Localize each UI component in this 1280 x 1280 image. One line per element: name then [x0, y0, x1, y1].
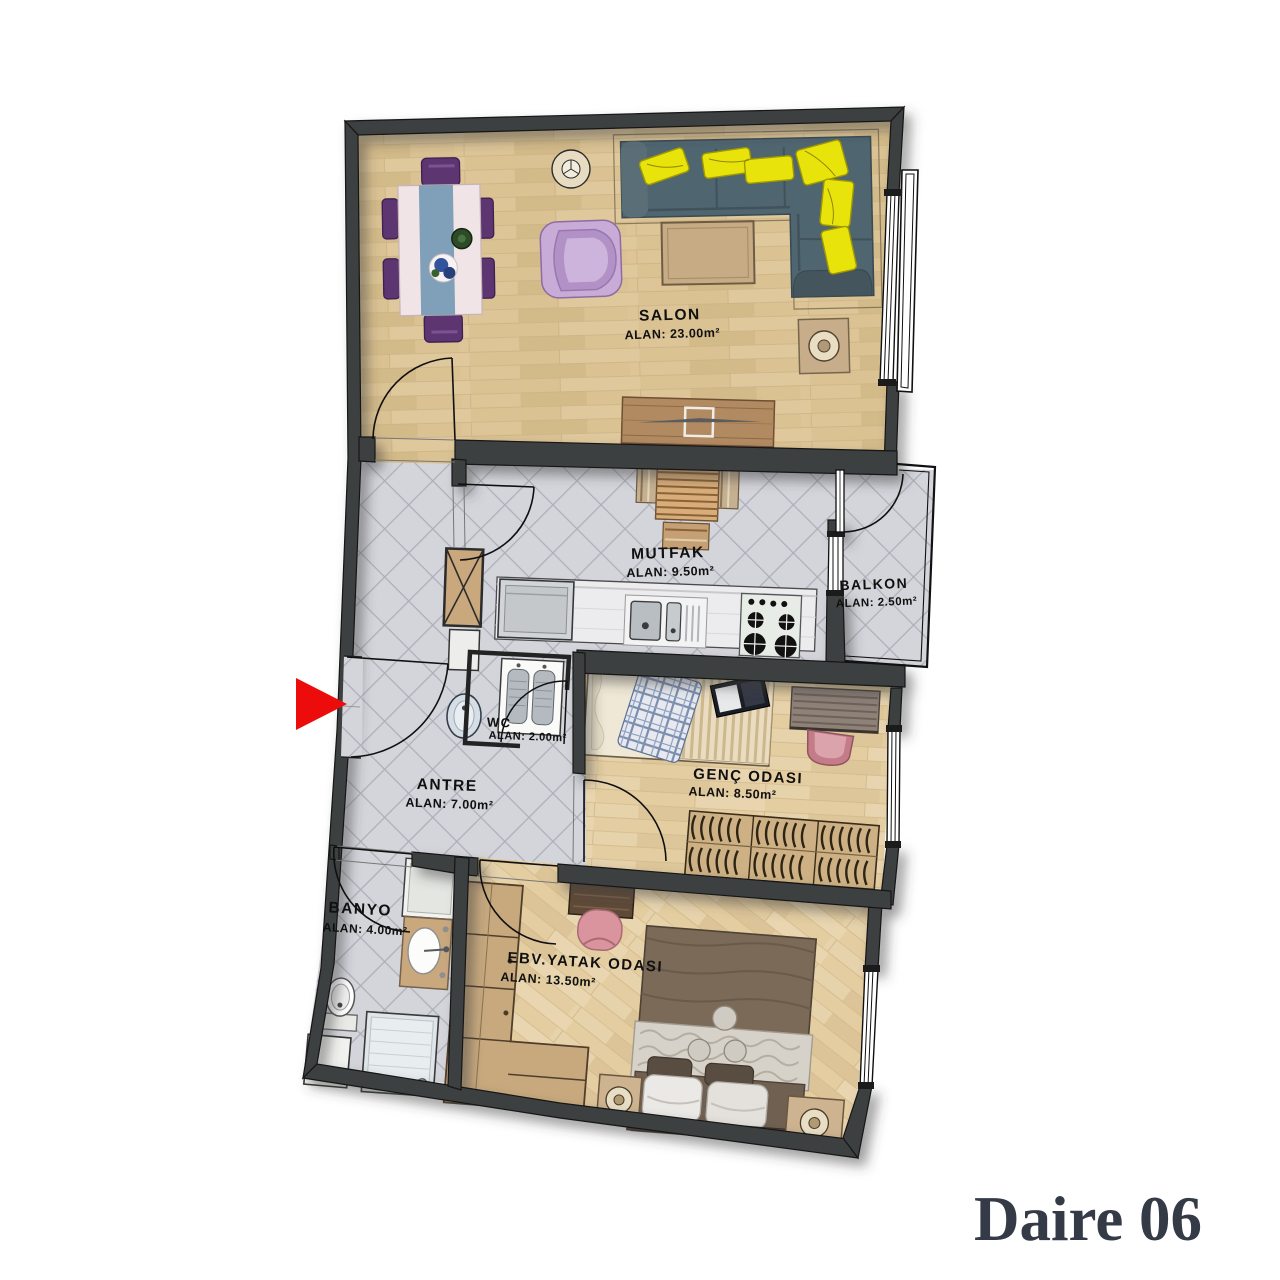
svg-text:ALAN: 23.00m²: ALAN: 23.00m²	[624, 326, 720, 342]
svg-text:Daire 06: Daire 06	[974, 1184, 1202, 1254]
svg-text:MUTFAK: MUTFAK	[631, 544, 705, 563]
svg-text:SALON: SALON	[639, 306, 701, 325]
svg-text:BALKON: BALKON	[839, 575, 908, 593]
svg-text:ALAN: 9.50m²: ALAN: 9.50m²	[626, 564, 714, 580]
svg-text:BANYO: BANYO	[328, 899, 392, 919]
svg-text:WC: WC	[487, 715, 512, 731]
svg-text:ANTRE: ANTRE	[416, 776, 477, 795]
